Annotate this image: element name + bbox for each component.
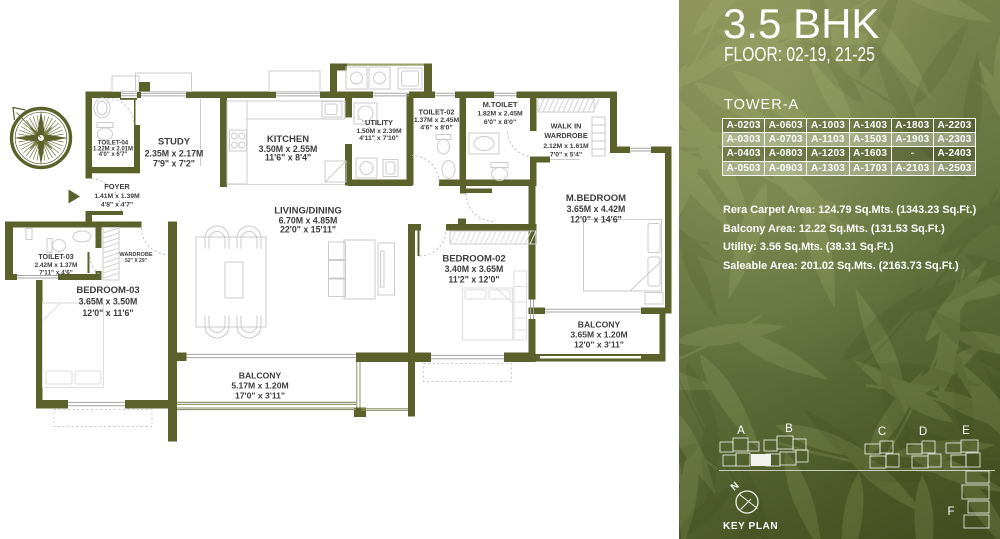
svg-text:N: N xyxy=(729,480,742,493)
svg-text:12'0" x 11'6": 12'0" x 11'6" xyxy=(82,308,133,318)
svg-text:12'0" x 14'6": 12'0" x 14'6" xyxy=(570,215,622,225)
svg-text:E: E xyxy=(962,425,970,437)
svg-text:STUDY: STUDY xyxy=(158,137,191,148)
svg-text:11'2" x 12'0": 11'2" x 12'0" xyxy=(448,275,499,285)
svg-text:17'0" x 3'11": 17'0" x 3'11" xyxy=(235,390,285,400)
svg-text:WARDROBE: WARDROBE xyxy=(544,131,588,140)
svg-text:2.42M x 1.37M: 2.42M x 1.37M xyxy=(35,262,78,269)
svg-text:TOILET-03: TOILET-03 xyxy=(38,252,73,261)
svg-text:2.12M x 1.61M: 2.12M x 1.61M xyxy=(543,143,589,150)
svg-text:5.17M x 1.20M: 5.17M x 1.20M xyxy=(231,380,288,390)
svg-text:1.82M x 2.45M: 1.82M x 2.45M xyxy=(477,111,523,118)
svg-text:22'0" x 15'11": 22'0" x 15'11" xyxy=(280,225,336,235)
svg-text:BEDROOM-03: BEDROOM-03 xyxy=(76,285,139,296)
svg-text:4'8" x 4'7": 4'8" x 4'7" xyxy=(101,201,133,208)
svg-text:3.40M x 3.65M: 3.40M x 3.65M xyxy=(445,264,504,274)
svg-text:12'0" x 3'11": 12'0" x 3'11" xyxy=(574,339,624,349)
svg-text:3.65M x 4.42M: 3.65M x 4.42M xyxy=(567,204,626,214)
svg-text:BALCONY: BALCONY xyxy=(578,320,621,330)
svg-text:2.35M x 2.17M: 2.35M x 2.17M xyxy=(145,149,204,159)
svg-text:52" X 29": 52" X 29" xyxy=(125,258,148,264)
svg-text:WALK IN: WALK IN xyxy=(551,122,582,131)
svg-text:UTILITY: UTILITY xyxy=(365,118,393,127)
svg-text:11'6" x 8'4": 11'6" x 8'4" xyxy=(265,153,311,163)
svg-text:7'0" x 5'4": 7'0" x 5'4" xyxy=(550,152,582,159)
svg-text:1.41M x 1.39M: 1.41M x 1.39M xyxy=(94,193,140,200)
svg-text:4'6" x 8'0": 4'6" x 8'0" xyxy=(420,125,452,132)
svg-text:BEDROOM-02: BEDROOM-02 xyxy=(442,254,505,265)
svg-text:M.BEDROOM: M.BEDROOM xyxy=(566,193,626,204)
svg-text:3.65M x 1.20M: 3.65M x 1.20M xyxy=(570,330,627,340)
svg-text:BALCONY: BALCONY xyxy=(239,371,282,381)
svg-text:M.TOILET: M.TOILET xyxy=(483,100,518,109)
svg-text:1.37M x 2.45M: 1.37M x 2.45M xyxy=(414,117,460,124)
svg-text:4'0" x 6'7": 4'0" x 6'7" xyxy=(99,152,128,158)
svg-text:6'0" x 8'0": 6'0" x 8'0" xyxy=(484,119,516,126)
svg-text:TOILET-02: TOILET-02 xyxy=(419,108,455,117)
svg-text:F: F xyxy=(947,506,954,518)
svg-text:FOYER: FOYER xyxy=(104,182,130,191)
svg-text:7'11" x 4'6": 7'11" x 4'6" xyxy=(39,269,73,276)
svg-text:3.65M x 3.50M: 3.65M x 3.50M xyxy=(79,297,138,307)
svg-text:7'9" x 7'2": 7'9" x 7'2" xyxy=(153,159,195,169)
svg-text:4'11" x 7'10": 4'11" x 7'10" xyxy=(359,135,399,142)
svg-text:C: C xyxy=(878,426,886,438)
svg-text:D: D xyxy=(919,426,927,438)
svg-text:B: B xyxy=(785,423,793,435)
svg-text:A: A xyxy=(737,425,745,437)
svg-text:1.50M x 2.39M: 1.50M x 2.39M xyxy=(356,128,402,135)
